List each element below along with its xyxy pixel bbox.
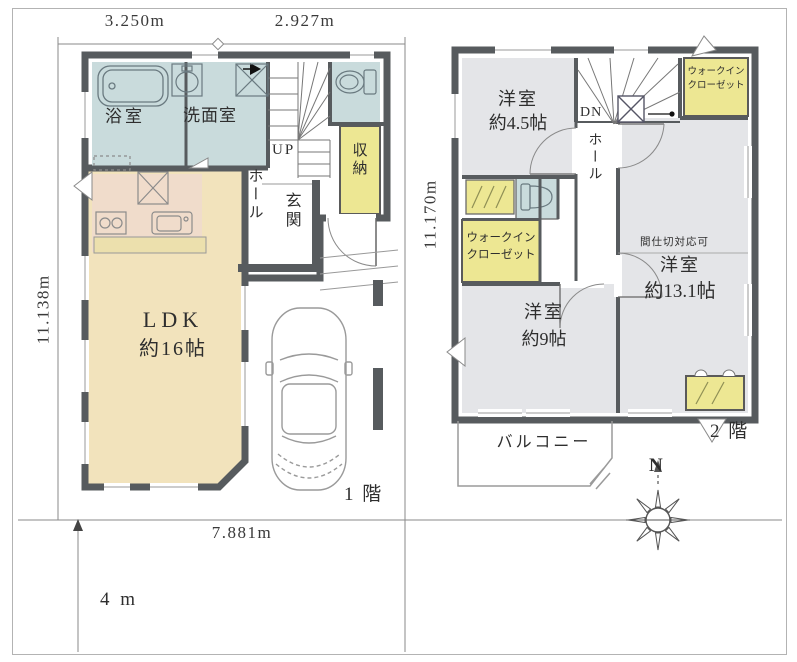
dim-center: 11.170m: [422, 169, 441, 259]
room-9-label: 洋室: [518, 303, 570, 323]
road-arrow: [73, 519, 83, 531]
room-13-1-size: 約13.1帖: [620, 282, 740, 303]
carport-wall-stub-2: [373, 368, 383, 430]
floor2-label: 2 階: [710, 422, 749, 443]
balcony-label: バルコニー: [488, 434, 600, 452]
balcony-outline: [458, 421, 612, 489]
floorplan-drawing: [0, 0, 797, 662]
wic-left-line1: ウォークイン: [464, 230, 538, 247]
carport-wall-stub-1: [373, 280, 383, 306]
wic-top-right-label: ウォークイン クローゼット: [686, 66, 746, 94]
f2-hall-label: ホール: [586, 132, 601, 183]
wic-left-label: ウォークイン クローゼット: [464, 230, 538, 263]
ldk-size-label: 約16帖: [121, 338, 225, 360]
wic-left-line2: クローゼット: [464, 247, 538, 264]
stairs-down-label: DN: [580, 105, 602, 120]
dim-left-side: 11.138m: [35, 264, 54, 354]
room-9-size: 約9帖: [510, 330, 578, 350]
stairs-up-label: UP: [272, 142, 295, 159]
closet-bottom-right: [686, 370, 744, 410]
bath-label: 浴室: [99, 108, 151, 127]
room-13-1-label: 洋室: [654, 256, 706, 276]
entrance-label: 玄関: [282, 192, 300, 230]
kitchen-counter: [94, 237, 206, 253]
closet-hanger-box: [466, 180, 514, 214]
stairs-down-box: [618, 96, 644, 122]
entrance-door-arc: [328, 218, 376, 266]
car-icon: [266, 308, 352, 490]
dim-road-width: 4 m: [100, 590, 138, 611]
floorplan-canvas: 3.250m 2.927m 11.138m 11.170m 7.881m 4 m…: [0, 0, 797, 662]
room-4-5-label: 洋室: [494, 90, 542, 110]
ldk-label: LDK: [129, 308, 217, 332]
storage-label: 収納: [350, 142, 367, 178]
wic-top-right-line2: クローゼット: [686, 80, 746, 94]
wic-top-right-line1: ウォークイン: [686, 66, 746, 80]
washroom-label: 洗面室: [172, 107, 248, 126]
f1-hall-label: ホール: [246, 168, 263, 222]
dim-top-right: 2.927m: [262, 12, 348, 31]
partition-note-label: 間仕切対応可: [640, 237, 709, 249]
room-4-5-size: 約4.5帖: [472, 114, 564, 134]
compass-north-label: N: [649, 456, 663, 477]
dim-bottom: 7.881m: [197, 524, 287, 543]
floor1-label: 1 階: [344, 485, 383, 506]
entrance-steps: [320, 250, 398, 290]
dim-top-left: 3.250m: [92, 12, 178, 31]
